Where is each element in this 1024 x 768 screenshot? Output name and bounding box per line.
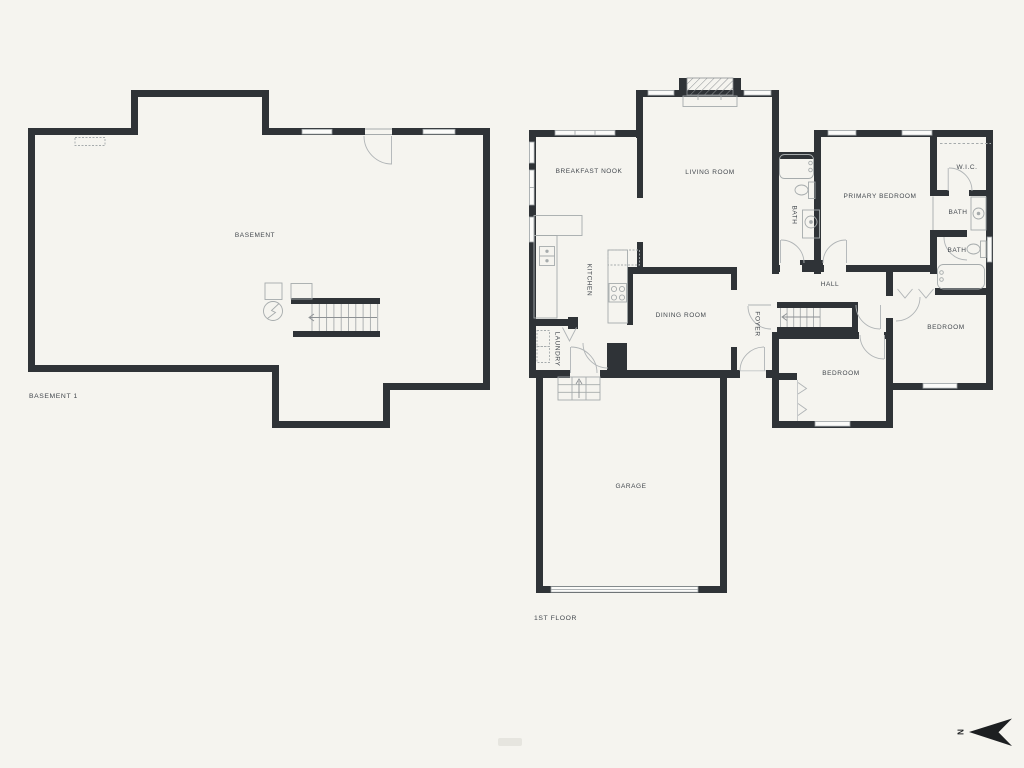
closet-bifold-2 [919, 289, 934, 298]
toilet-hall-tank [981, 241, 987, 258]
floorplan-drawing [0, 0, 1024, 768]
room-label-bedroom-rear: BEDROOM [927, 325, 964, 332]
floor-label-basement: BASEMENT 1 [29, 394, 78, 401]
room-label-wic: W.I.C. [957, 165, 978, 172]
room-label-dining-room: DINING ROOM [656, 313, 707, 320]
north-arrow-icon [969, 719, 1012, 747]
room-label-laundry: LAUNDRY [553, 332, 560, 367]
first-floor-walls [529, 78, 993, 593]
dining-door-arc [583, 343, 608, 368]
room-label-basement: BASEMENT [235, 233, 275, 240]
room-label-garage: GARAGE [615, 484, 646, 491]
tub-hall [938, 265, 985, 290]
basement-stairs [309, 304, 378, 331]
toilet-primary-bowl [795, 185, 808, 195]
north-indicator [969, 719, 1012, 747]
room-label-breakfast-nook: BREAKFAST NOOK [556, 169, 623, 176]
primary-bedroom-door-arc [823, 240, 846, 263]
basement-walls [28, 90, 490, 428]
corridor-door-arc [856, 305, 880, 329]
room-label-bath-hall: BATH [947, 248, 966, 255]
bath-primary-door-arc [781, 240, 804, 263]
floorplan-page: BASEMENT BASEMENT 1 BREAKFAST NOOK LIVIN… [0, 0, 1024, 768]
room-label-bedroom-front: BEDROOM [822, 371, 859, 378]
watermark [498, 738, 522, 746]
room-label-hall: HALL [821, 282, 839, 289]
fireplace [683, 78, 737, 107]
closet-bifold-1 [898, 289, 913, 298]
floor-label-first-floor: 1ST FLOOR [534, 616, 577, 623]
laundry-door-chevron [563, 328, 577, 342]
wic-door-arc [949, 168, 972, 191]
room-label-living-room: LIVING ROOM [685, 170, 734, 177]
toilet-hall-bowl [967, 244, 980, 254]
mudroom-stairs [558, 377, 600, 400]
bedroom-front-closet-chevron-1 [798, 383, 807, 395]
room-label-primary-bedroom: PRIMARY BEDROOM [843, 194, 916, 201]
hall-stairs [781, 308, 821, 327]
room-label-kitchen: KITCHEN [585, 264, 592, 296]
room-label-bath-primary: BATH [790, 205, 797, 224]
first-floor-windows [529, 90, 991, 592]
bedroom-front-closet-chevron-2 [798, 404, 807, 416]
basement-door-arc [364, 136, 392, 164]
room-label-foyer: FOYER [753, 311, 760, 336]
front-door-arc [740, 347, 764, 371]
bedroom-rear-door-arc [896, 297, 920, 321]
room-label-bath-vanity: BATH [948, 210, 967, 217]
north-label: N [957, 729, 966, 735]
